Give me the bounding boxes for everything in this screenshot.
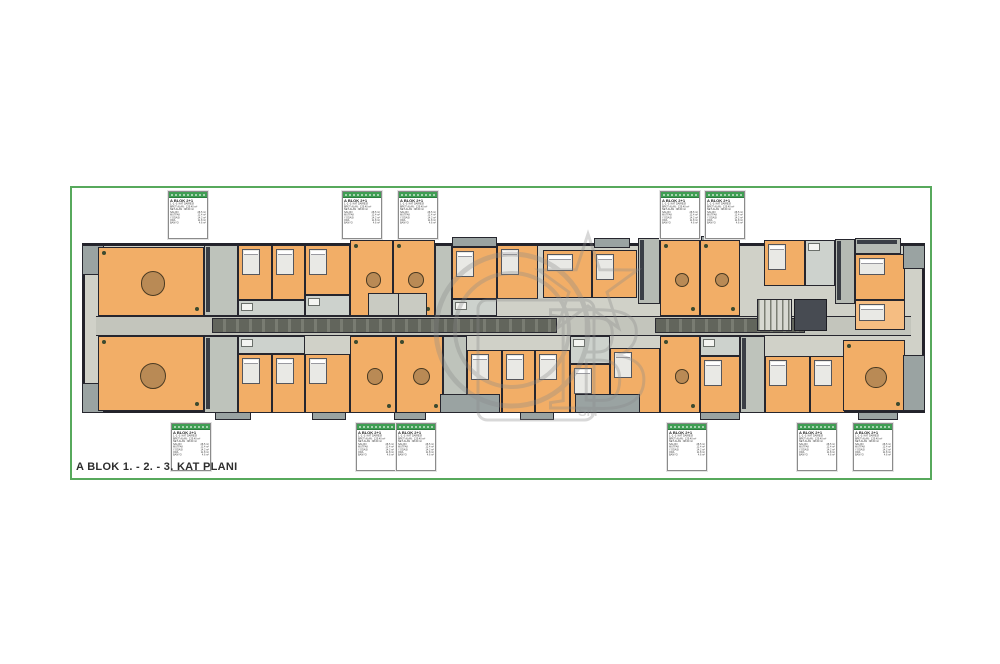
bed-icon — [309, 249, 327, 275]
tub-icon — [308, 298, 320, 306]
room-liv — [700, 240, 740, 316]
tub-icon — [703, 339, 715, 347]
room-name: BANYO — [855, 454, 864, 457]
room-name: BANYO — [170, 222, 179, 225]
room-liv — [660, 336, 700, 413]
plant-icon — [400, 340, 404, 344]
room-kit — [835, 239, 855, 304]
room-bed2 — [855, 300, 905, 330]
pillow-icon — [278, 251, 292, 255]
room-util — [204, 336, 238, 413]
plant-icon — [731, 307, 735, 311]
room-area: 4.6 m² — [884, 454, 891, 457]
pillow-icon — [311, 251, 325, 255]
room-name: BANYO — [173, 454, 182, 457]
card-area-row: BANYO4.6 m² — [398, 454, 434, 457]
unit-info-card: A BLOK 2+1 1.-2.-3. KAT DAİRESİBRÜT ALAN… — [705, 191, 745, 239]
room-balB — [858, 412, 898, 420]
pillow-icon — [503, 251, 517, 255]
bed-icon — [242, 358, 260, 384]
room-area: 4.6 m² — [698, 454, 705, 457]
card-body: A BLOK 2+1 1.-2.-3. KAT DAİRESİBRÜT ALAN… — [357, 430, 395, 457]
card-body: A BLOK 2+1 1.-2.-3. KAT DAİRESİBRÜT ALAN… — [399, 198, 437, 225]
bed-icon — [596, 254, 614, 280]
table-icon — [141, 271, 165, 295]
tub-icon — [808, 243, 820, 251]
tub-icon — [241, 303, 253, 311]
table-icon — [140, 363, 166, 389]
pillow-icon — [541, 356, 555, 360]
room-hall — [435, 245, 452, 316]
counter-icon — [206, 338, 210, 409]
table-icon — [366, 272, 382, 288]
pillow-icon — [508, 356, 522, 360]
room-cnt — [855, 238, 901, 254]
room-kit — [638, 238, 660, 304]
card-area-row: BANYO4.6 m² — [662, 222, 698, 225]
plant-icon — [102, 251, 106, 255]
card-area-row: BANYO4.6 m² — [173, 454, 209, 457]
pillow-icon — [576, 370, 590, 374]
counter-icon — [742, 338, 746, 409]
pillow-icon — [278, 360, 292, 364]
room-name: BANYO — [358, 454, 367, 457]
plant-icon — [704, 244, 708, 248]
unit-info-card: A BLOK 2+1 1.-2.-3. KAT DAİRESİBRÜT ALAN… — [168, 191, 208, 239]
bed-icon — [704, 360, 722, 386]
card-body: A BLOK 2+1 1.-2.-3. KAT DAİRESİBRÜT ALAN… — [668, 430, 706, 457]
room-name: BANYO — [669, 454, 678, 457]
bed-icon — [501, 249, 519, 275]
card-area-row: BANYO4.6 m² — [344, 222, 380, 225]
pillow-icon — [816, 362, 830, 366]
bed-icon — [859, 304, 885, 321]
bed-icon — [814, 360, 832, 386]
room-bath — [238, 300, 305, 316]
room-liv — [98, 247, 204, 316]
unit-info-card: A BLOK 2+1 1.-2.-3. KAT DAİRESİBRÜT ALAN… — [398, 191, 438, 239]
plant-icon — [691, 307, 695, 311]
bed-icon — [456, 251, 474, 277]
plant-icon — [102, 340, 106, 344]
plan-title: A BLOK 1. - 2. - 3. KAT PLANI — [76, 461, 238, 473]
bed-icon — [276, 249, 294, 275]
pillow-icon — [473, 356, 487, 360]
room-bath — [805, 240, 835, 286]
room-bal — [575, 394, 640, 413]
unit-info-card: A BLOK 2+1 1.-2.-3. KAT DAİRESİBRÜT ALAN… — [396, 423, 436, 471]
table-icon — [865, 367, 887, 389]
bed-icon — [614, 352, 632, 378]
room-bed — [502, 350, 535, 413]
bed-icon — [769, 360, 787, 386]
page: B SM A BLOK 2+1 1.-2.-3. KAT DAİRESİBRÜT… — [0, 0, 1000, 664]
card-area-row: BANYO4.6 m² — [707, 222, 743, 225]
counter-icon — [837, 241, 841, 300]
bed-icon — [574, 368, 592, 394]
bed-icon — [309, 358, 327, 384]
room-area: 4.6 m² — [387, 454, 394, 457]
room-corD — [212, 318, 557, 333]
room-area: 4.6 m² — [202, 454, 209, 457]
room-util — [204, 245, 238, 316]
room-area: 4.6 m² — [427, 454, 434, 457]
room-bath — [452, 299, 497, 316]
room-bed — [592, 250, 637, 298]
plant-icon — [397, 244, 401, 248]
bed-icon — [547, 254, 573, 271]
card-body: A BLOK 2+1 1.-2.-3. KAT DAİRESİBRÜT ALAN… — [343, 198, 381, 225]
room-bed — [764, 240, 805, 286]
pillow-icon — [244, 360, 258, 364]
plant-icon — [847, 344, 851, 348]
room-bed — [452, 247, 497, 299]
pillow-icon — [549, 256, 571, 260]
room-elev — [368, 293, 427, 316]
room-name: BANYO — [662, 222, 671, 225]
plant-icon — [387, 404, 391, 408]
room-bath — [238, 336, 305, 354]
plant-icon — [354, 340, 358, 344]
room-balB — [215, 412, 251, 420]
card-body: A BLOK 2+1 1.-2.-3. KAT DAİRESİBRÜT ALAN… — [854, 430, 892, 457]
card-area-row: BANYO4.6 m² — [400, 222, 436, 225]
plant-icon — [664, 244, 668, 248]
unit-info-card: A BLOK 2+1 1.-2.-3. KAT DAİRESİBRÜT ALAN… — [853, 423, 893, 471]
room-area: 4.6 m² — [828, 454, 835, 457]
table-icon — [367, 368, 384, 385]
room-bed — [497, 245, 538, 299]
plant-icon — [354, 244, 358, 248]
bed-icon — [242, 249, 260, 275]
room-liv — [843, 340, 905, 411]
pillow-icon — [861, 306, 883, 310]
plant-icon — [195, 307, 199, 311]
room-bath — [305, 295, 350, 316]
pillow-icon — [616, 354, 630, 358]
card-body: A BLOK 2+1 1.-2.-3. KAT DAİRESİBRÜT ALAN… — [397, 430, 435, 457]
table-icon — [715, 273, 730, 288]
room-stair — [757, 299, 792, 331]
room-balT — [594, 238, 630, 248]
room-balB — [312, 412, 346, 420]
plant-icon — [664, 340, 668, 344]
room-bal — [903, 355, 925, 411]
counter-icon — [857, 240, 897, 244]
card-area-row: BANYO4.6 m² — [170, 222, 206, 225]
room-name: BANYO — [398, 454, 407, 457]
counter-icon — [640, 240, 644, 300]
room-liv — [350, 336, 396, 413]
room-bed — [238, 245, 272, 300]
counter-icon — [206, 247, 210, 312]
table-icon — [413, 368, 430, 385]
room-balT — [452, 237, 497, 247]
pillow-icon — [458, 253, 472, 257]
room-bed — [272, 245, 305, 300]
room-util — [740, 336, 765, 413]
bed-icon — [539, 354, 557, 380]
card-area-row: BANYO4.6 m² — [669, 454, 705, 457]
card-area-row: BANYO4.6 m² — [799, 454, 835, 457]
room-bed — [305, 354, 350, 413]
room-name: BANYO — [707, 222, 716, 225]
unit-info-card: A BLOK 2+1 1.-2.-3. KAT DAİRESİBRÜT ALAN… — [660, 191, 700, 239]
card-body: A BLOK 2+1 1.-2.-3. KAT DAİRESİBRÜT ALAN… — [706, 198, 744, 225]
room-name: BANYO — [400, 222, 409, 225]
room-name: BANYO — [344, 222, 353, 225]
room-area: 4.6 m² — [199, 222, 206, 225]
room-balB — [394, 412, 426, 420]
table-icon — [675, 369, 690, 384]
room-bed — [810, 356, 845, 413]
plant-icon — [434, 404, 438, 408]
floor-plan — [0, 0, 1000, 664]
room-area: 4.6 m² — [373, 222, 380, 225]
room-balB — [520, 412, 554, 420]
pillow-icon — [861, 260, 883, 264]
bed-icon — [276, 358, 294, 384]
room-shaft — [794, 299, 827, 331]
tub-icon — [241, 339, 253, 347]
pillow-icon — [311, 360, 325, 364]
card-area-row: BANYO4.6 m² — [358, 454, 394, 457]
room-liv — [98, 336, 204, 411]
tub-icon — [455, 302, 467, 310]
card-body: A BLOK 2+1 1.-2.-3. KAT DAİRESİBRÜT ALAN… — [172, 430, 210, 457]
card-area-row: BANYO4.6 m² — [855, 454, 891, 457]
unit-info-card: A BLOK 2+1 1.-2.-3. KAT DAİRESİBRÜT ALAN… — [667, 423, 707, 471]
room-area: 4.6 m² — [736, 222, 743, 225]
unit-info-card: A BLOK 2+1 1.-2.-3. KAT DAİRESİBRÜT ALAN… — [342, 191, 382, 239]
card-body: A BLOK 2+1 1.-2.-3. KAT DAİRESİBRÜT ALAN… — [661, 198, 699, 225]
pillow-icon — [598, 256, 612, 260]
room-bed — [272, 354, 305, 413]
plant-icon — [896, 402, 900, 406]
table-icon — [408, 272, 423, 287]
bed-icon — [859, 258, 885, 275]
room-balB — [700, 412, 740, 420]
pillow-icon — [771, 362, 785, 366]
room-bal — [903, 245, 925, 269]
plant-icon — [195, 402, 199, 406]
room-name: BANYO — [799, 454, 808, 457]
room-bed — [535, 350, 570, 413]
room-bed — [765, 356, 810, 413]
room-area: 4.6 m² — [691, 222, 698, 225]
plant-icon — [691, 404, 695, 408]
room-bath — [700, 336, 740, 356]
room-area: 4.6 m² — [429, 222, 436, 225]
room-bath — [570, 336, 610, 364]
bed-icon — [768, 244, 786, 270]
card-body: A BLOK 2+1 1.-2.-3. KAT DAİRESİBRÜT ALAN… — [798, 430, 836, 457]
pillow-icon — [706, 362, 720, 366]
room-bal — [440, 394, 500, 413]
room-bed — [238, 354, 272, 413]
room-bed — [855, 254, 905, 300]
pillow-icon — [770, 246, 784, 250]
room-bed — [700, 356, 740, 413]
table-icon — [675, 273, 690, 288]
unit-info-card: A BLOK 2+1 1.-2.-3. KAT DAİRESİBRÜT ALAN… — [797, 423, 837, 471]
pillow-icon — [244, 251, 258, 255]
bed-icon — [506, 354, 524, 380]
card-body: A BLOK 2+1 1.-2.-3. KAT DAİRESİBRÜT ALAN… — [169, 198, 207, 225]
unit-info-card: A BLOK 2+1 1.-2.-3. KAT DAİRESİBRÜT ALAN… — [356, 423, 396, 471]
room-liv — [396, 336, 443, 413]
room-liv — [660, 240, 700, 316]
tub-icon — [573, 339, 585, 347]
bed-icon — [471, 354, 489, 380]
room-bed — [305, 245, 350, 295]
room-bed — [543, 250, 592, 298]
